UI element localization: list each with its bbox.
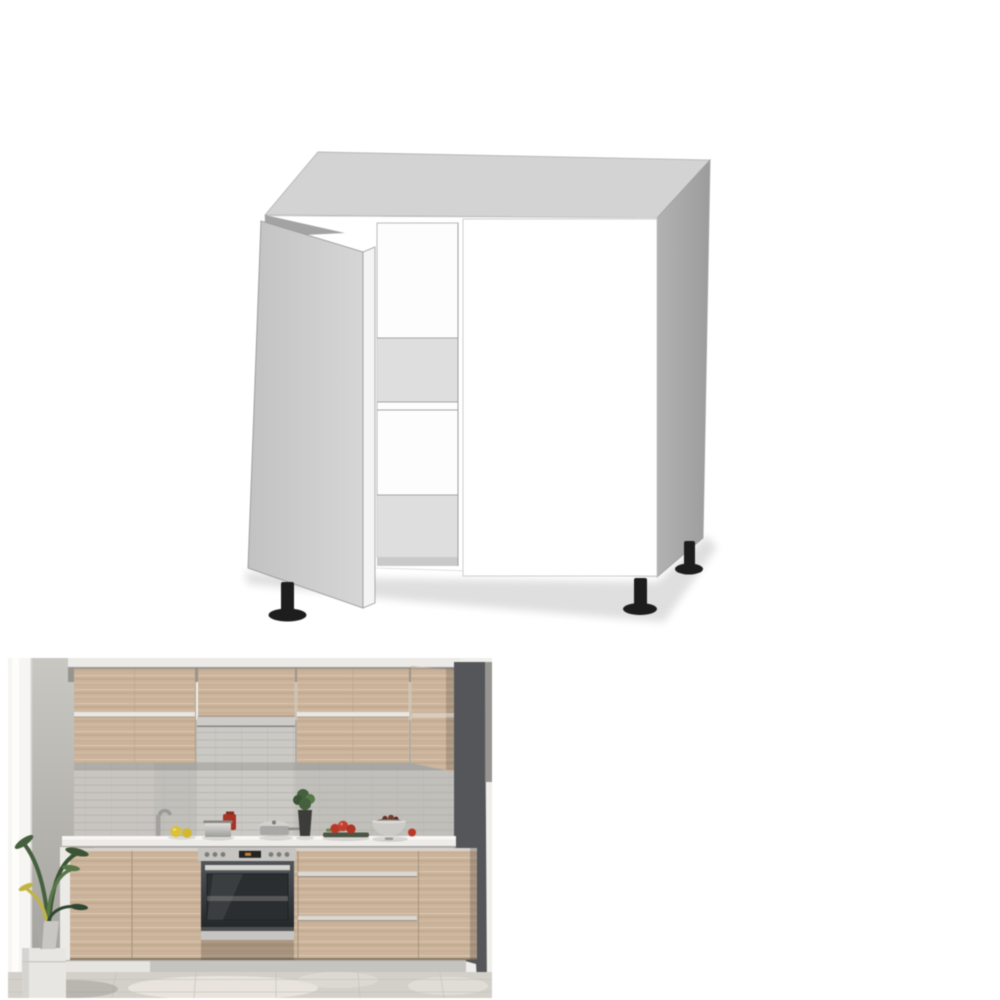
product-image-collage <box>0 0 1000 1000</box>
cooker-hood <box>197 717 295 727</box>
ceiling-strip <box>68 658 460 668</box>
upper-handle-strip-left <box>74 712 195 717</box>
floor <box>8 972 492 998</box>
plinth <box>66 960 466 973</box>
cabinet-line-drawing <box>240 130 735 650</box>
cabinet-top-panel <box>265 152 710 218</box>
drawer-handle-strip-1 <box>298 872 417 876</box>
cabinet-interior <box>377 223 458 566</box>
pedestal <box>22 948 66 998</box>
cabinet-right-door <box>463 219 657 576</box>
interior-bottom-panel <box>377 557 458 566</box>
cabinet-open-door <box>248 221 375 608</box>
open-door-edge <box>363 247 375 608</box>
built-in-oven <box>198 848 296 960</box>
window-frame <box>8 658 32 998</box>
interior-shelf-band-upper <box>377 338 458 402</box>
kitchen-photo <box>8 658 492 998</box>
upper-cabinet-middle <box>198 668 295 717</box>
upper-handle-strip-right <box>297 712 409 717</box>
cabinet-right-side-panel <box>657 160 710 577</box>
interior-shelf-band-lower <box>377 495 458 557</box>
open-door-face <box>248 221 363 608</box>
drawer-handle-strip-2 <box>298 916 417 920</box>
oven-handle <box>205 865 290 870</box>
